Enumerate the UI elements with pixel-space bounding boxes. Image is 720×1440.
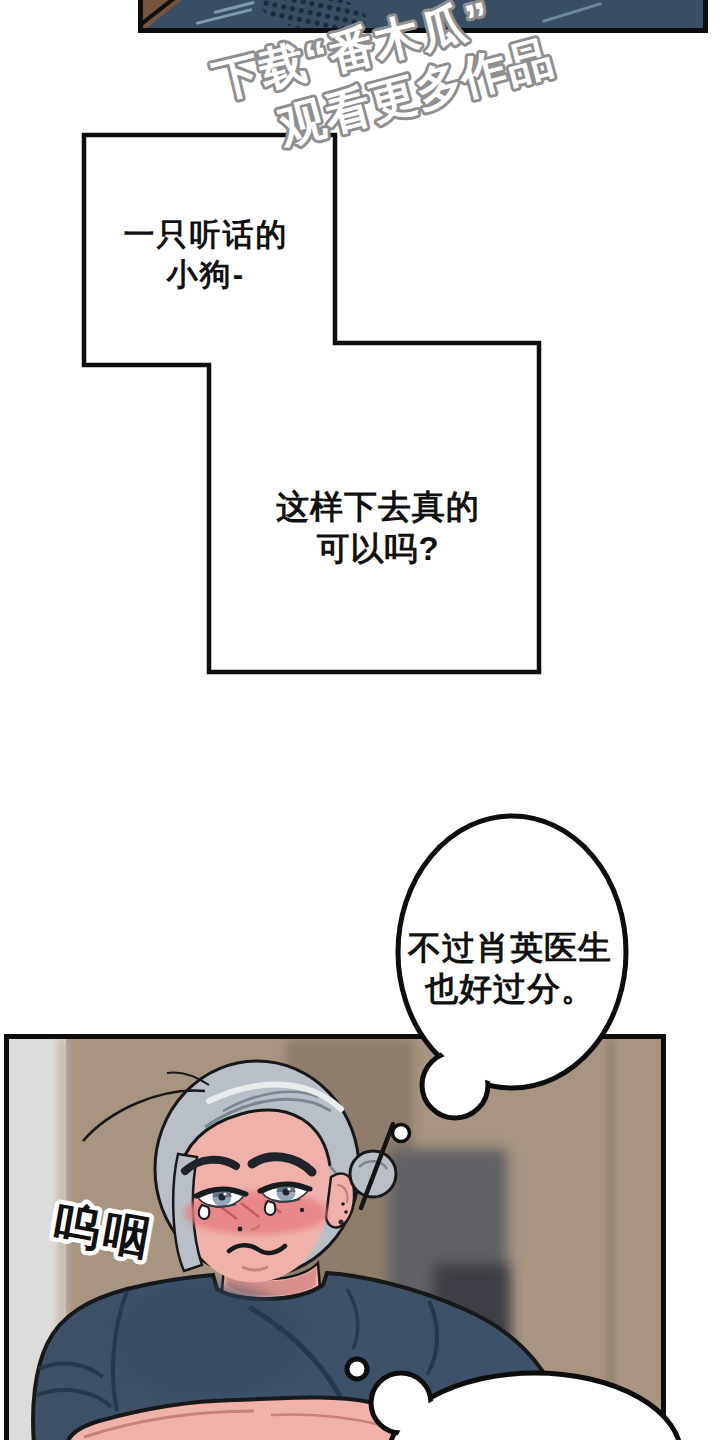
narration-bubbles-shape <box>0 0 720 720</box>
narration-1-line-1: 一只听话的 <box>86 215 326 255</box>
thought-bubble-text: 不过肖英医生 也好过分。 <box>398 927 622 1009</box>
comic-page: 一只听话的 小狗- 这样下去真的 可以吗? <box>0 0 720 1440</box>
tear-right <box>265 1201 276 1215</box>
narration-2-line-2: 可以吗? <box>238 528 518 570</box>
narration-bubble-2-text: 这样下去真的 可以吗? <box>238 486 518 570</box>
ear-piercing <box>344 1210 348 1214</box>
earring <box>339 1220 344 1225</box>
thought-line-2: 也好过分。 <box>398 968 622 1009</box>
narration-1-line-2: 小狗- <box>86 255 326 295</box>
ear-piercing <box>341 1202 345 1206</box>
narration-bubble-1-text: 一只听话的 小狗- <box>86 215 326 295</box>
mole <box>238 1227 243 1232</box>
narration-2-line-1: 这样下去真的 <box>238 486 518 528</box>
thought-line-1: 不过肖英医生 <box>398 927 622 968</box>
thought-bubble-bottom-shape <box>320 1340 720 1440</box>
tear-left <box>199 1205 210 1219</box>
mole <box>300 1208 304 1212</box>
